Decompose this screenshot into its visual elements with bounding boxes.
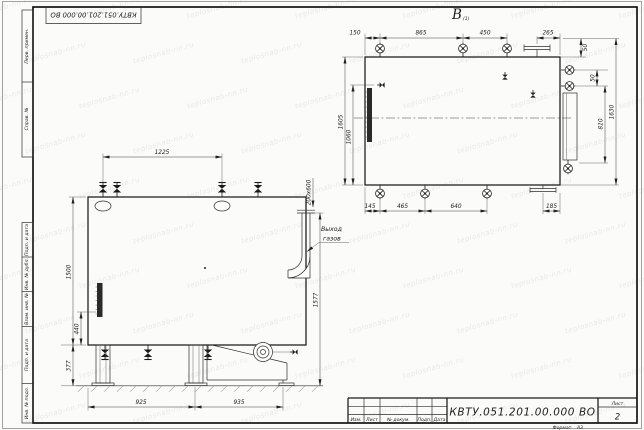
drawing-frame: [33, 7, 637, 423]
margin-stamp-bottom: Подп. и дата Инв. № дубл. Взам. инв. № П…: [22, 223, 33, 424]
top-view: В (1): [339, 7, 620, 214]
dim-145: 145: [364, 204, 375, 210]
valve-icon: [421, 185, 430, 199]
valve-icon: [254, 183, 262, 198]
stamp-col-izm: Изм.: [351, 417, 362, 423]
dim-duct-size: 200х600: [307, 179, 313, 205]
dim-front-mid: 440: [75, 323, 81, 334]
gas-duct: [288, 210, 315, 278]
stamp-sheet-label: Лист: [611, 401, 624, 407]
valve-icon: [376, 185, 385, 199]
top-designation-text: КВТУ.051.201.00.000 ВО: [50, 11, 137, 19]
engineering-drawing-canvas: Перв. примен. Справ. № Подп. и дата Инв.…: [0, 0, 644, 430]
format-label: Формат: [553, 425, 572, 430]
ladder-strip: [367, 88, 372, 142]
margin-stamp-top: Перв. примен. Справ. №: [22, 10, 33, 157]
sheet-outer-border: [3, 2, 642, 429]
margin-label-podp-data-2: Подп. и дата: [24, 339, 30, 371]
center-mark: [204, 267, 206, 269]
dim-1605: 1605: [339, 114, 345, 129]
burner-bracket: [207, 345, 294, 386]
fitting-icon: [502, 72, 508, 80]
fitting-icon: [290, 349, 298, 355]
title-block: Изм. Лист № докум. Подп. Дата КВТУ.051.2…: [348, 398, 637, 430]
stamp-sheet-number: 2: [615, 413, 620, 423]
valve-icon: [113, 183, 121, 198]
valve-icon: [503, 43, 512, 57]
valve-icon: [99, 183, 107, 198]
dim-front-leg: 377: [67, 360, 73, 371]
flange-nozzle-top: [524, 45, 550, 58]
fitting-icon: [530, 90, 536, 98]
fitting-icon: [377, 82, 385, 88]
dim-front-height: 1500: [67, 264, 73, 279]
stamp-col-podp: Подп.: [418, 417, 432, 423]
view-label-sub: (1): [463, 16, 470, 22]
valve-icon: [218, 183, 226, 198]
dim-front-bottom-right: 935: [233, 400, 244, 406]
dim-465: 465: [397, 204, 408, 210]
margin-label-inv-podl: Инв. № подл.: [24, 387, 30, 419]
dim-front-right: 1577: [314, 292, 320, 307]
valve-icon: [376, 43, 385, 57]
stamp-designation: КВТУ.051.201.00.000 ВО: [449, 407, 595, 419]
format-value: А3: [576, 425, 583, 430]
dim-50a: 50: [583, 44, 589, 52]
dim-865: 865: [415, 31, 426, 37]
dim-front-top: 1225: [155, 150, 170, 156]
ground-line: [76, 386, 323, 392]
stamp-col-list: Лист: [365, 417, 378, 423]
valve-icon: [459, 43, 468, 57]
dim-810: 810: [599, 118, 605, 129]
front-view: 1225 1500 440 377 925 935 1577 200х600 В: [61, 150, 349, 411]
margin-label-inv-dubl: Инв. № дубл.: [24, 258, 30, 290]
margin-label-perv-primen: Перв. примен.: [24, 28, 30, 63]
valve-icon: [144, 345, 152, 360]
margin-label-sprav-no: Справ. №: [24, 107, 30, 130]
stamp-col-doc: № докум.: [386, 417, 410, 423]
stamp-col-data: Дата: [433, 417, 446, 423]
valve-icon: [483, 185, 492, 199]
dim-150: 150: [349, 31, 360, 37]
dim-50b: 50: [591, 74, 597, 82]
margin-label-podp-data-1: Подп. и дата: [24, 224, 30, 256]
dim-185: 185: [546, 204, 557, 210]
dim-1630: 1630: [610, 104, 616, 119]
dim-1060: 1060: [347, 129, 353, 144]
valve-icon: [564, 160, 573, 174]
top-designation-box: КВТУ.051.201.00.000 ВО: [46, 7, 141, 24]
dim-640: 640: [450, 204, 461, 210]
chimney-duct: [563, 93, 577, 160]
gas-exit-label-line1: Выход: [321, 226, 342, 233]
flange-nozzle-bottom: [530, 185, 556, 193]
valve-icon: [101, 345, 109, 360]
level-gauge: [97, 283, 103, 317]
dim-265: 265: [542, 31, 553, 37]
dim-450: 450: [479, 31, 490, 37]
gas-exit-label-line2: газов: [323, 236, 341, 243]
view-label: В: [451, 7, 462, 23]
dim-front-bottom-left: 925: [135, 400, 146, 406]
valve-icon: [204, 345, 212, 360]
margin-label-vzam-inv: Взам. инв. №: [24, 293, 30, 325]
